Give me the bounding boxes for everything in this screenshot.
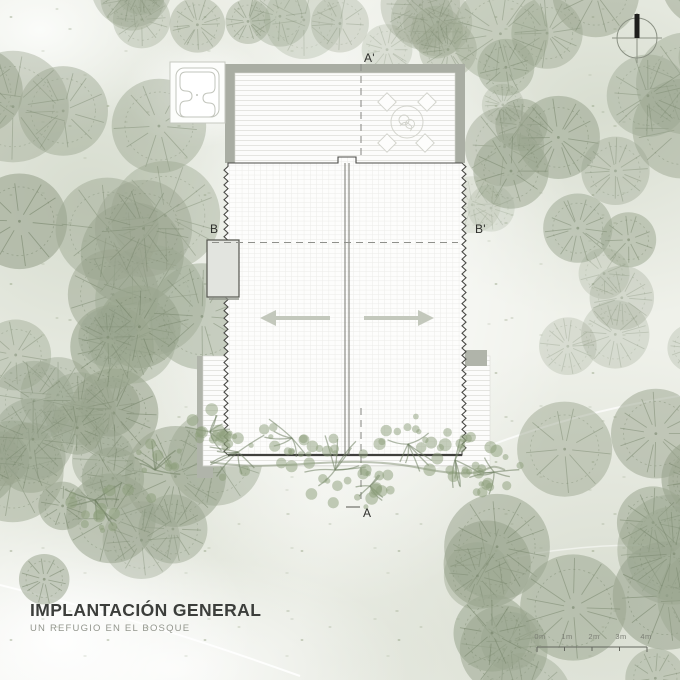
tree-canopy <box>579 248 630 299</box>
tree-canopy <box>607 54 680 136</box>
section-marker-a-bottom: A <box>363 507 371 519</box>
terrace-wall-right <box>455 64 465 163</box>
section-marker-b-right: B' <box>475 223 486 235</box>
scale-bar: 0m 1m 2m 3m 4m <box>536 633 650 649</box>
tree-canopy <box>581 300 649 368</box>
tree-canopy <box>581 137 649 205</box>
scale-label: 0m <box>534 633 545 641</box>
scale-label: 3m <box>615 633 626 641</box>
scale-bar-labels: 0m 1m 2m 3m 4m <box>536 633 650 641</box>
tree-canopy <box>170 0 226 53</box>
section-marker-b-left: B <box>210 223 218 235</box>
tree-canopy <box>19 554 70 605</box>
tree-canopy <box>661 0 680 27</box>
tree-canopy <box>95 180 192 277</box>
page-title: IMPLANTACIÓN GENERAL <box>30 601 261 620</box>
page-subtitle: UN REFUGIO EN EL BOSQUE <box>30 624 261 634</box>
scale-label: 2m <box>588 633 599 641</box>
tree-canopy <box>38 482 86 530</box>
scale-bar-rule <box>536 646 650 654</box>
tree-canopy <box>78 308 137 367</box>
scale-label: 4m <box>640 633 651 641</box>
terrace-wall-left <box>225 64 235 163</box>
tree-canopy <box>225 0 270 44</box>
terrace-wall-top <box>225 64 465 73</box>
tree-canopy <box>517 402 612 497</box>
title-block: IMPLANTACIÓN GENERAL UN REFUGIO EN EL BO… <box>30 601 261 634</box>
site-plan-canvas: A' A B B' IMPLANTACIÓN GENERAL UN REFUGI… <box>0 0 680 680</box>
tree-canopy <box>667 324 680 372</box>
equipment-block <box>465 350 487 366</box>
section-marker-a-top: A' <box>364 52 375 64</box>
site-plan-drawing <box>0 0 680 680</box>
tree-canopy <box>454 594 531 671</box>
scale-label: 1m <box>561 633 572 641</box>
window-box <box>207 240 239 297</box>
tree-canopy <box>482 84 524 126</box>
hot-tub <box>170 62 225 123</box>
